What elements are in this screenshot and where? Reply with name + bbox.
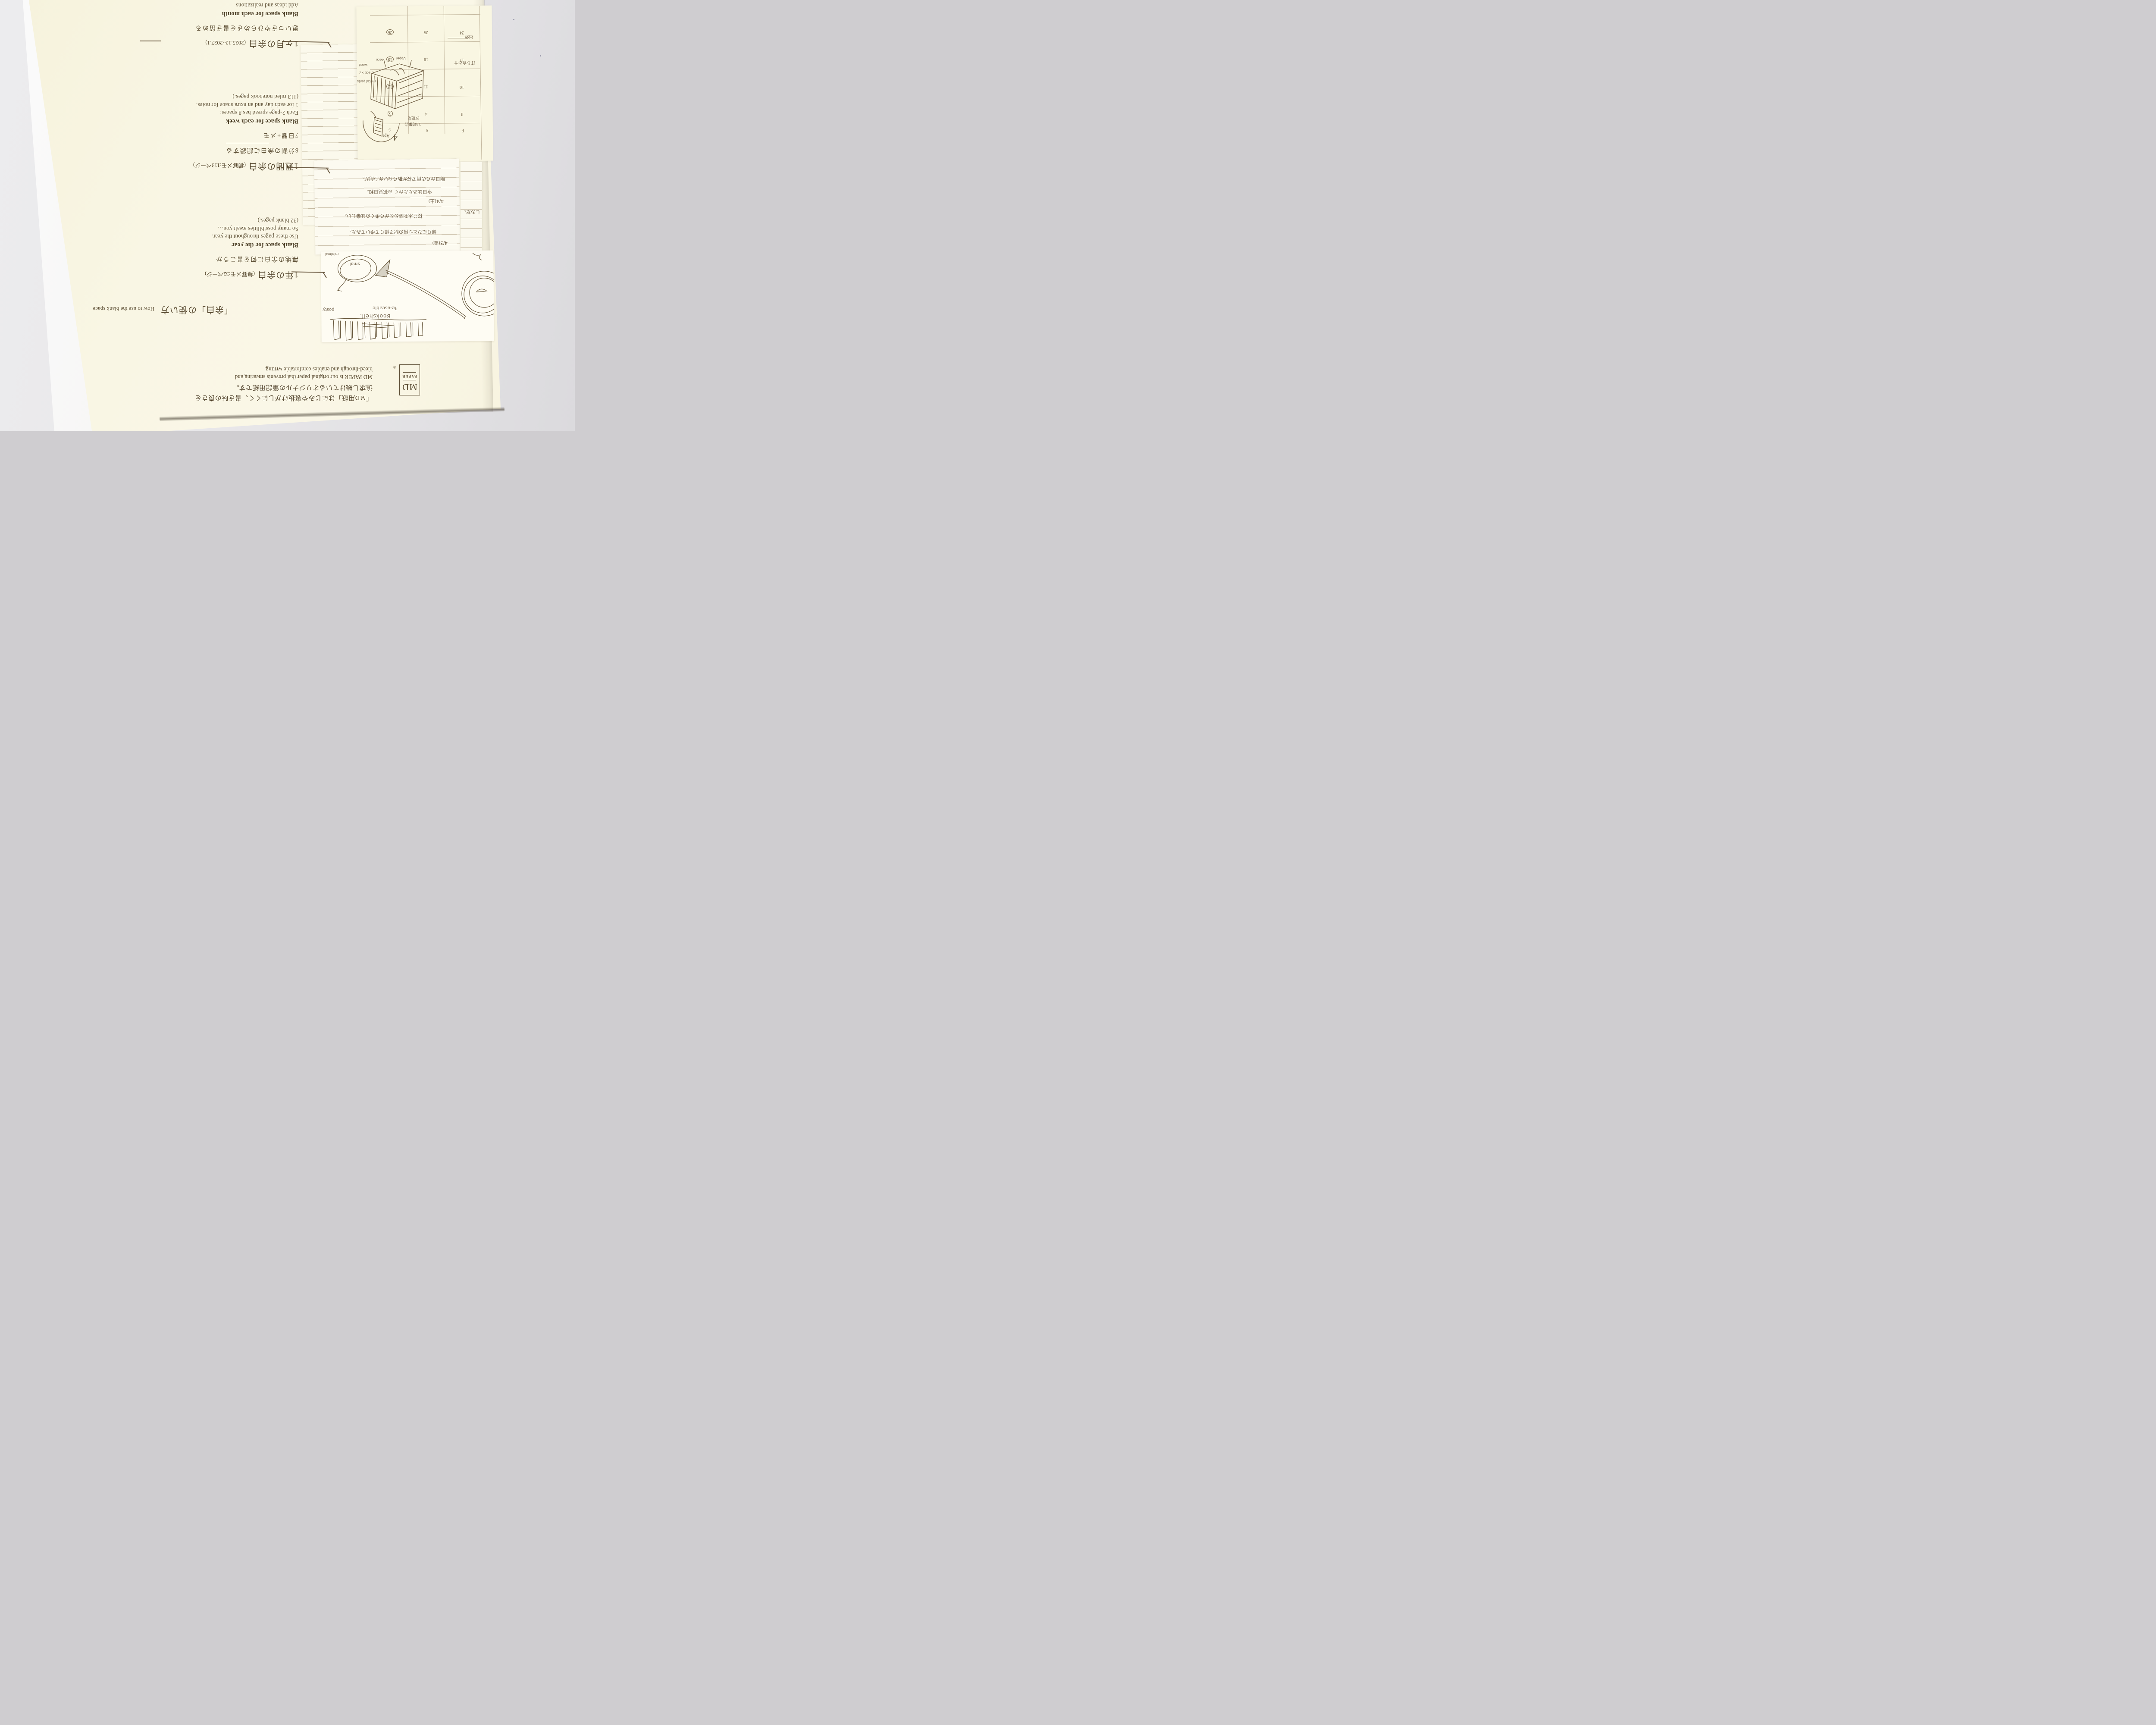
section-year-note: (無罫メモ:32ページ) <box>205 271 255 277</box>
box-sketch <box>358 56 427 142</box>
section-week-tagline: 8分割の余白に記録する <box>129 146 298 155</box>
diary-card-fragment <box>461 162 482 251</box>
section-year-heading: 1年の余白 (無罫メモ:32ページ) <box>129 270 298 282</box>
diary-entry2-line1: 今日はあたたかく お花見日和。 <box>351 188 432 195</box>
section-year-tagline: 無地の余白に何を書こうか <box>129 255 298 264</box>
doodle-label-bookshelf: Bookshelf. <box>360 313 391 319</box>
doodle-label-small: small <box>348 261 360 266</box>
box-sketch-label-metal: metal parts <box>357 79 376 83</box>
section-month-tagline: 思いつきやひらめきを書き留める <box>129 24 298 33</box>
calendar-date: 26 <box>386 29 394 35</box>
md-paper-logo-rule <box>403 372 416 373</box>
section-year-title: Blank space for the year <box>129 241 298 248</box>
diary-entry1-line2: 桜並木を眺めながら歩くのは楽しい。 <box>334 213 423 220</box>
section-year-desc2: So many possibilities await you… <box>129 225 298 232</box>
week-divider-rule <box>226 143 269 143</box>
usage-heading: 「余白」の使い方 How to use the blank space <box>78 304 233 317</box>
paper-intro-en1: MD PAPER is our original paper that prev… <box>164 373 373 380</box>
md-paper-logo-md: MD <box>400 382 420 392</box>
calendar-note-trip: 出張 <box>465 34 473 41</box>
section-week-title: Blank space for each week <box>129 117 298 125</box>
paper-intro-jp2: 追求し続けているオリジナルの筆記用紙です。 <box>164 383 373 392</box>
box-sketch-label-wood: wood <box>359 63 367 67</box>
calendar-note-meeting: 打ち合わせ <box>454 60 475 66</box>
section-month-desc: Add ideas and realizations <box>129 2 298 9</box>
section-month: 1ヶ月の余白 (2025.12~2027.1) 思いつきやひらめきを書き留める … <box>129 0 298 51</box>
calendar-date: 10 <box>460 85 464 89</box>
doodle-label-reuseable: Re-useable <box>373 305 398 310</box>
doodle-label-posty: posty <box>323 307 335 312</box>
section-year-desc3: (32 blank pages.) <box>129 217 298 224</box>
calendar-day-header: F <box>462 129 464 133</box>
box-sketch-label-piece: Piece <box>376 58 385 62</box>
product-photo: 26 25 24 19 18 17 12 11 10 5 4 3 S S F 4… <box>0 0 575 431</box>
calendar-date: 3 <box>461 112 463 116</box>
section-week-desc3: (113 ruled notebook pages.) <box>129 94 298 100</box>
paper-intro-jp1: 「MD用紙」はにじみや裏抜けがしにくく、書き味の良さを <box>164 394 373 403</box>
section-week-desc1: Each 2-page spread has 8 spaces: <box>129 110 298 116</box>
usage-heading-en: How to use the blank space <box>93 306 154 312</box>
trip-duration-line <box>448 38 465 38</box>
bookshelf-doodle <box>321 251 494 342</box>
paper-intro-en2: bleed-through and enables comfortable wr… <box>164 366 373 373</box>
section-month-title: Blank space for each month <box>129 10 298 17</box>
dust-speck <box>513 19 514 20</box>
box-sketch-label-upper: Upper <box>396 56 406 60</box>
dust-speck <box>540 55 541 56</box>
calendar-date: 25 <box>424 30 428 34</box>
doodle-label-minimal: minimal <box>325 252 338 256</box>
section-year-desc1: Use these pages throughout the year. <box>129 233 298 240</box>
section-week-desc2: 1 for each day and an extra space for no… <box>129 101 298 108</box>
md-paper-logo-rule <box>403 380 416 380</box>
md-paper-logo: MD PAPER <box>399 364 420 395</box>
diary-entry2-line2: 明日からの雨で桜が散らないか心配だ。 <box>321 176 445 182</box>
heading-dash <box>140 41 161 41</box>
section-week-note: (横罫メモ:113ページ) <box>193 162 246 169</box>
diary-fragment-text: しみだ。 <box>461 209 480 216</box>
diary-entry1-line1: 帰りにひとつ隣の駅で降りて歩いてみた。 <box>341 229 436 235</box>
box-sketch-label-black: black ×2 <box>359 71 373 75</box>
section-week-heading: 1週間の余白 (横罫メモ:113ページ) <box>129 161 298 173</box>
sketch-sample-card <box>321 251 494 342</box>
section-week-tagline2: 7日間+メモ <box>129 131 298 140</box>
registered-mark: ® <box>393 365 396 369</box>
usage-heading-jp: 「余白」の使い方 <box>160 305 233 314</box>
calendar-date: 24 <box>460 30 464 35</box>
section-month-note: (2025.12~2027.1) <box>205 40 246 46</box>
diary-entry1-date: 4/3(金) <box>429 240 448 246</box>
diary-entry2-date: 4/4(土) <box>425 198 444 204</box>
md-paper-logo-paper: PAPER <box>400 374 420 379</box>
section-year: 1年の余白 (無罫メモ:32ページ) 無地の余白に何を書こうか Blank sp… <box>129 214 298 282</box>
section-week: 1週間の余白 (横罫メモ:113ページ) 8分割の余白に記録する 7日間+メモ … <box>129 80 298 173</box>
paper-intro: 「MD用紙」はにじみや裏抜けがしにくく、書き味の良さを 追求し続けているオリジナ… <box>164 363 373 403</box>
